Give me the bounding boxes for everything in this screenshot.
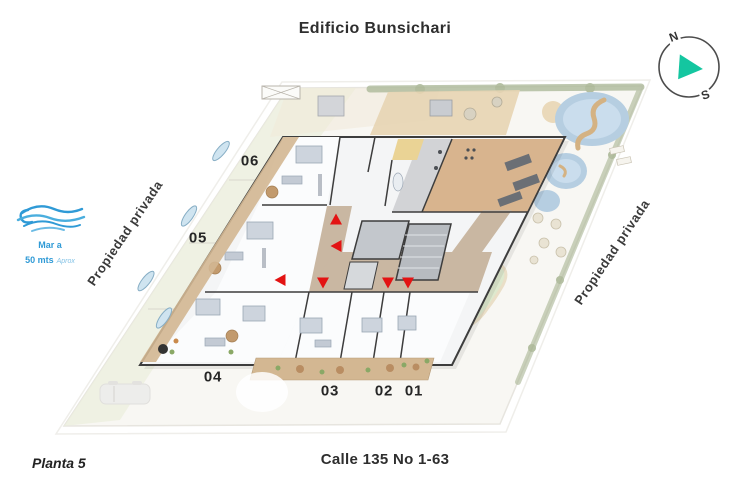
- waves-icon: [12, 200, 88, 234]
- page-title: Edificio Bunsichari: [0, 20, 750, 38]
- compass-north-label: N: [667, 29, 680, 45]
- sea-distance-approx: Aprox: [57, 258, 75, 265]
- street-label: Calle 135 No 1-63: [20, 451, 750, 468]
- compass: N S: [646, 22, 732, 108]
- sea-distance-line2: 50 mts: [25, 255, 54, 265]
- canvas: Edificio Bunsichari Calle 135 No 1-63 Pl…: [0, 0, 750, 500]
- sea-distance-line1: Mar a: [12, 240, 88, 250]
- sea-note: Mar a 50 mtsAprox: [12, 200, 88, 268]
- stair-core: [344, 221, 451, 289]
- floor-label: Planta 5: [32, 455, 86, 471]
- compass-arrow-icon: [678, 54, 704, 81]
